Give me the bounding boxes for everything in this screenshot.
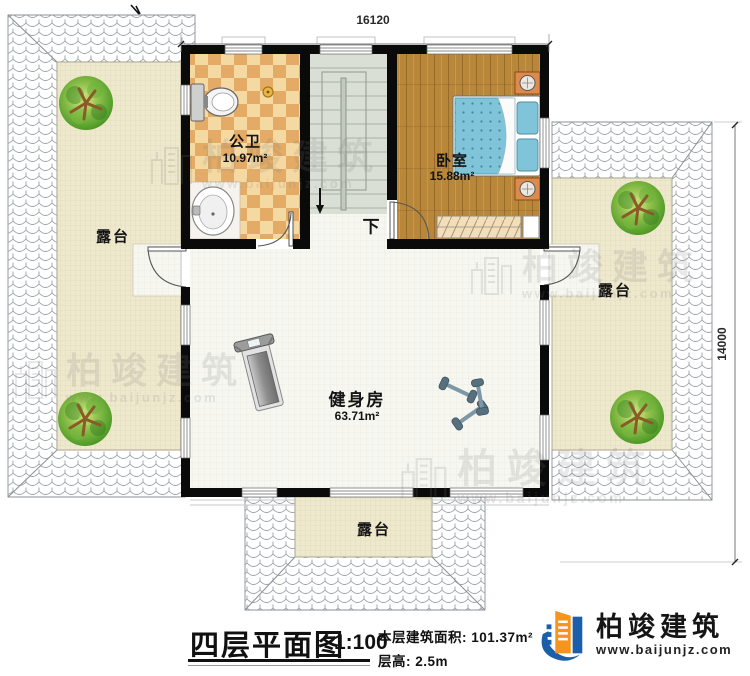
company-logo-icon <box>536 606 590 664</box>
tree-icon <box>610 390 664 444</box>
room-label-gym: 健身房 <box>329 392 386 409</box>
room-area-bathroom: 10.97m² <box>223 152 268 164</box>
towel-ring-icon <box>263 87 273 97</box>
dimension-top: 16120 <box>356 14 389 26</box>
floor-area-line: 本层建筑面积: 101.37m² <box>378 626 533 646</box>
window <box>540 300 549 345</box>
stairs-down-label: 下 <box>363 219 380 236</box>
floor-height-line: 层高: 2.5m <box>378 650 448 670</box>
floor-area-label: 本层建筑面积: <box>378 630 467 645</box>
room-label-terrace-bottom: 露台 <box>357 523 391 538</box>
window <box>427 45 512 54</box>
title-underline-thin <box>188 665 370 666</box>
landing-west <box>133 244 181 296</box>
landing-east <box>549 244 599 296</box>
window <box>320 45 372 54</box>
title-underline <box>188 659 370 662</box>
room-label-bedroom: 卧室 <box>436 154 468 169</box>
window <box>225 45 262 54</box>
dimension-right: 14000 <box>716 327 728 360</box>
floor-area-value: 101.37m² <box>471 630 533 645</box>
window <box>242 488 277 497</box>
window <box>450 488 523 497</box>
window-sills <box>222 37 515 44</box>
room-label-terrace-left: 露台 <box>96 230 130 245</box>
window <box>540 118 549 168</box>
nightstand-icon <box>515 178 540 200</box>
window <box>540 415 549 460</box>
sink-icon <box>190 182 240 239</box>
wardrobe-icon <box>437 216 539 238</box>
plan-title: 四层平面图 <box>190 622 345 664</box>
tree-icon <box>59 76 113 130</box>
nightstand-icon <box>515 72 540 94</box>
room-area-bedroom: 15.88m² <box>430 170 475 182</box>
floor-height-label: 层高: <box>378 654 411 669</box>
company-name: 柏竣建筑 <box>596 613 732 643</box>
floor-plan-canvas <box>0 0 750 676</box>
gym-floor <box>190 249 540 488</box>
company-website: www.baijunjz.com <box>596 642 732 657</box>
tree-icon <box>58 392 112 446</box>
window <box>181 305 190 345</box>
ink-mark-icon <box>131 5 140 14</box>
company-logo: 柏竣建筑 www.baijunjz.com <box>536 606 732 664</box>
room-area-gym: 63.71m² <box>335 410 380 422</box>
floor-height-value: 2.5m <box>415 654 448 669</box>
tree-icon <box>611 181 665 235</box>
room-label-bathroom: 公卫 <box>229 135 261 150</box>
floor-plan: 柏竣建筑 www.baijunjz.com 柏竣建筑 www.baijunjz.… <box>0 0 750 676</box>
window <box>181 418 190 458</box>
window <box>330 488 413 497</box>
window <box>181 85 190 115</box>
room-label-terrace-right: 露台 <box>598 284 632 299</box>
